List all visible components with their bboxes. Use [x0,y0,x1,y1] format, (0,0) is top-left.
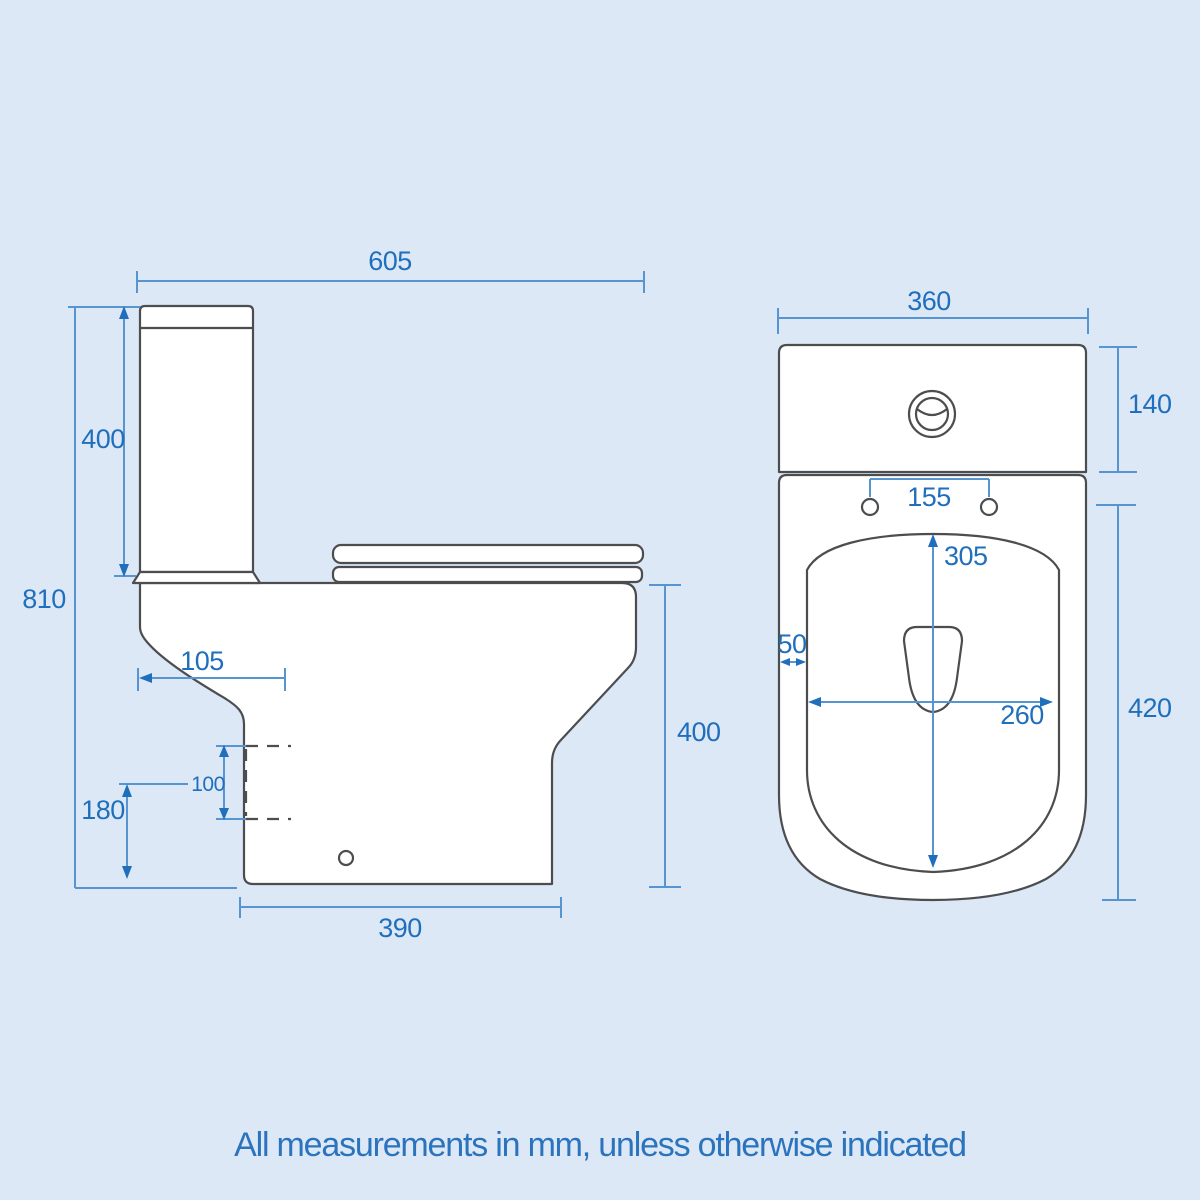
dim-label: 305 [944,541,988,571]
flush-button [909,391,955,437]
dim-label: 390 [378,913,422,943]
side-cistern-base-lip [133,572,260,583]
side-pan-outline [140,583,636,884]
dim-side-pan-height: 400 [649,585,721,887]
dim-label: 810 [22,584,66,614]
dim-front-cistern-height: 140 [1099,347,1172,472]
front-hinge-hole-left [862,499,878,515]
side-view: 605 810 400 105 100 [22,246,720,943]
front-cistern-outline [779,345,1086,472]
technical-drawing-canvas: 605 810 400 105 100 [0,0,1200,1200]
dim-label: 50 [777,629,806,659]
dim-label: 140 [1128,389,1172,419]
dim-side-overall-width: 605 [137,246,644,293]
dim-side-base-depth: 390 [240,897,561,943]
dim-label: 105 [180,646,224,676]
dim-front-pan-height: 420 [1096,505,1172,900]
side-toilet-outline [133,306,643,884]
dim-label: 605 [368,246,412,276]
dim-side-outlet-height: 180 [81,784,188,879]
toilet-dimension-drawing: 605 810 400 105 100 [0,0,1200,1200]
dim-front-width: 360 [778,286,1088,334]
side-seat-ring-bar [333,567,642,582]
units-note: All measurements in mm, unless otherwise… [0,1126,1200,1165]
side-seat-lid-bar [333,545,643,563]
dim-side-outlet-size: 100 [191,745,246,820]
front-hinge-hole-right [981,499,997,515]
dim-label: 420 [1128,693,1172,723]
dim-label: 260 [1000,700,1044,730]
dim-label: 180 [81,795,125,825]
dim-side-cistern-height: 400 [81,306,136,577]
front-view: 360 140 155 305 50 [777,286,1171,900]
side-cistern-outline [140,306,253,572]
dim-label: 400 [81,424,125,454]
dim-label: 400 [677,717,721,747]
dim-label: 155 [907,482,951,512]
dim-label: 360 [907,286,951,316]
dim-label: 100 [191,773,225,796]
